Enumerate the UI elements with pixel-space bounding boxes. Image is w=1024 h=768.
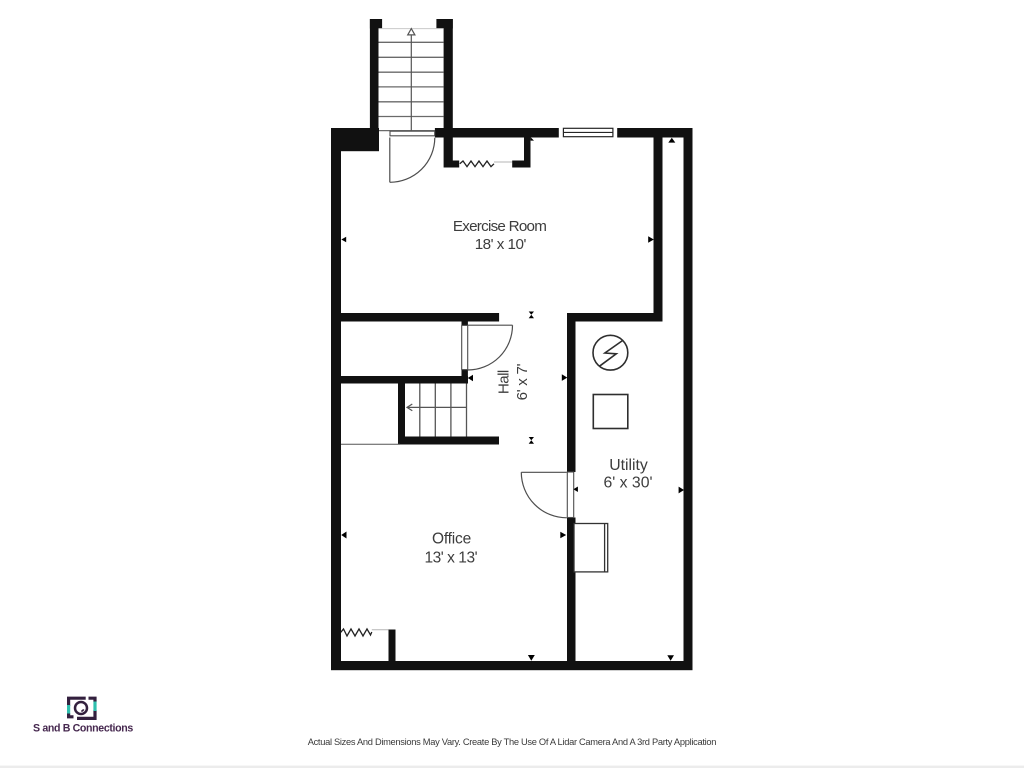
- svg-text:6' x 30': 6' x 30': [603, 475, 652, 492]
- svg-text:S and B Connections: S and B Connections: [33, 723, 133, 735]
- svg-text:Utility: Utility: [609, 457, 648, 474]
- svg-text:Office: Office: [432, 530, 471, 547]
- svg-text:Hall: Hall: [496, 370, 513, 394]
- svg-text:Actual Sizes And Dimensions Ma: Actual Sizes And Dimensions May Vary. Cr…: [308, 737, 717, 747]
- svg-text:Exercise Room: Exercise Room: [453, 218, 546, 235]
- svg-text:6' x 7': 6' x 7': [514, 363, 531, 400]
- svg-text:13' x 13': 13' x 13': [424, 549, 477, 566]
- svg-text:18' x 10': 18' x 10': [475, 236, 527, 253]
